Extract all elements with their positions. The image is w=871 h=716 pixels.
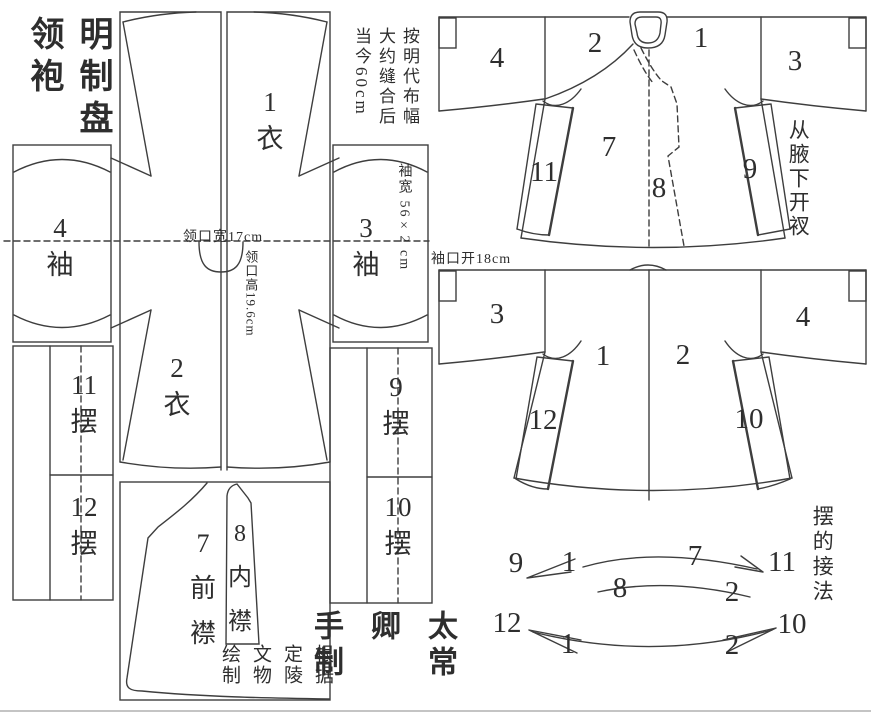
piece-label-11: 11 摆 xyxy=(59,367,109,441)
assembly-num-1b: 1 xyxy=(546,628,590,661)
front-num-4: 4 xyxy=(475,42,519,75)
piece-label-12: 12 摆 xyxy=(59,489,109,563)
assembly-title: 摆的接法 xyxy=(809,505,835,620)
neck-width-label: 领口宽17cm xyxy=(183,229,263,247)
piece-label-8: 8 内 襟 xyxy=(217,512,263,644)
front-num-9: 9 xyxy=(728,153,772,186)
assembly-num-2b: 2 xyxy=(710,629,754,662)
front-left-cuff xyxy=(439,18,456,48)
piece-label-9: 9 摆 xyxy=(371,369,421,443)
sleeve-width-label: 袖宽 56×2 cm xyxy=(395,163,413,295)
back-num-1: 1 xyxy=(581,340,625,373)
back-num-2: 2 xyxy=(661,339,705,372)
assembly-num-10: 10 xyxy=(770,608,814,641)
assembly-num-1a: 1 xyxy=(547,546,591,579)
assembly-num-12: 12 xyxy=(485,607,529,640)
back-num-10: 10 xyxy=(727,403,771,436)
assembly-num-8: 8 xyxy=(598,572,642,605)
back-num-3: 3 xyxy=(475,298,519,331)
assembly-num-2a: 2 xyxy=(710,576,754,609)
back-collar-arc xyxy=(630,265,666,270)
piece-label-2: 2 衣 xyxy=(152,350,202,424)
back-num-4: 4 xyxy=(781,301,825,334)
front-num-1: 1 xyxy=(679,22,723,55)
assembly-num-7: 7 xyxy=(673,540,717,573)
front-right-cuff xyxy=(849,18,866,48)
front-num-7: 7 xyxy=(587,131,631,164)
pattern-title: 明制盘 领袍 xyxy=(13,16,117,166)
back-right-cuff xyxy=(849,271,866,301)
front-num-11: 11 xyxy=(522,156,566,189)
back-left-cuff xyxy=(439,271,456,301)
assembly-num-9: 9 xyxy=(494,547,538,580)
back-num-12: 12 xyxy=(521,404,565,437)
page-canvas: 明制盘 领袍 按明代布幅 大约缝合后 当今60cm 领口宽17cm 领口高19.… xyxy=(0,0,871,716)
fabric-note: 按明代布幅 大约缝合后 当今60cm xyxy=(339,27,421,147)
piece-label-3: 3 袖 xyxy=(341,210,391,284)
piece-label-4: 4 袖 xyxy=(35,210,85,284)
front-num-2: 2 xyxy=(573,27,617,60)
front-num-8: 8 xyxy=(637,172,681,205)
neck-height-label: 领口高19.6cm xyxy=(242,250,258,355)
arrow-to-11 xyxy=(735,556,763,572)
signature: 太常卿 手制 xyxy=(364,610,468,715)
piece-label-1: 1 衣 xyxy=(245,84,295,158)
slit-note: 从腋下开衩 xyxy=(785,119,811,254)
round-collar-inner xyxy=(635,17,661,43)
piece-label-10: 10 摆 xyxy=(373,489,423,563)
cuff-open-label: 袖口开18cm xyxy=(431,251,511,269)
assembly-num-11: 11 xyxy=(760,546,804,579)
front-num-3: 3 xyxy=(773,45,817,78)
